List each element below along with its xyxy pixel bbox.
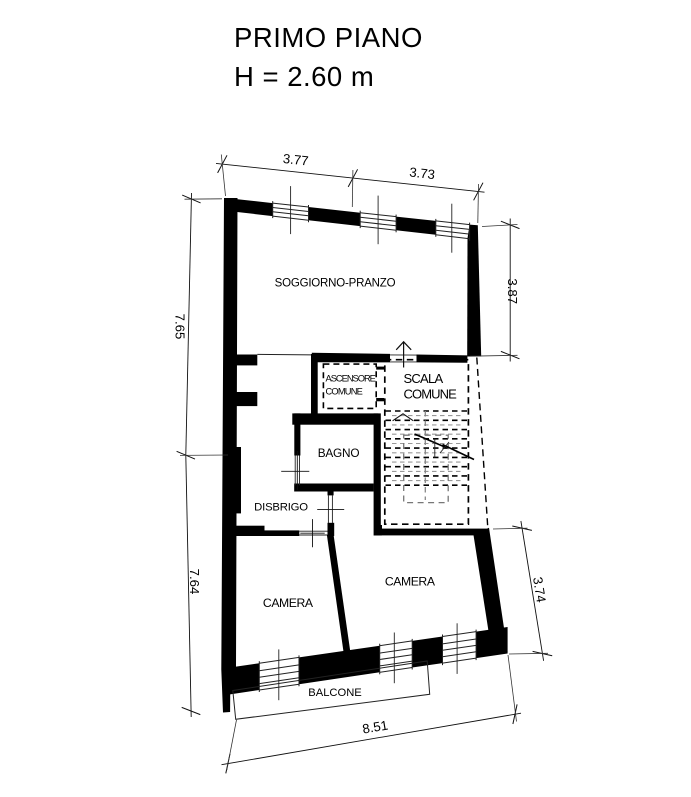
svg-text:DISBRIGO: DISBRIGO [254,501,308,513]
svg-text:H = 2.60 m: H = 2.60 m [234,61,374,92]
svg-text:CAMERA: CAMERA [385,575,436,589]
svg-text:3.77: 3.77 [282,151,309,169]
svg-text:COMUNE: COMUNE [404,386,458,401]
svg-text:COMUNE: COMUNE [326,387,363,397]
svg-text:PRIMO PIANO: PRIMO PIANO [234,22,423,53]
svg-text:BALCONE: BALCONE [308,687,361,699]
svg-text:ASCENSORE: ASCENSORE [326,373,376,383]
svg-text:SOGGIORNO-PRANZO: SOGGIORNO-PRANZO [275,278,396,290]
svg-text:SCALA: SCALA [404,371,444,386]
svg-text:BAGNO: BAGNO [318,446,360,460]
svg-text:7.64: 7.64 [187,569,202,595]
svg-text:3.87: 3.87 [505,278,520,304]
svg-text:7.65: 7.65 [172,314,187,340]
svg-text:CAMERA: CAMERA [263,596,314,610]
svg-text:3.73: 3.73 [409,165,436,183]
